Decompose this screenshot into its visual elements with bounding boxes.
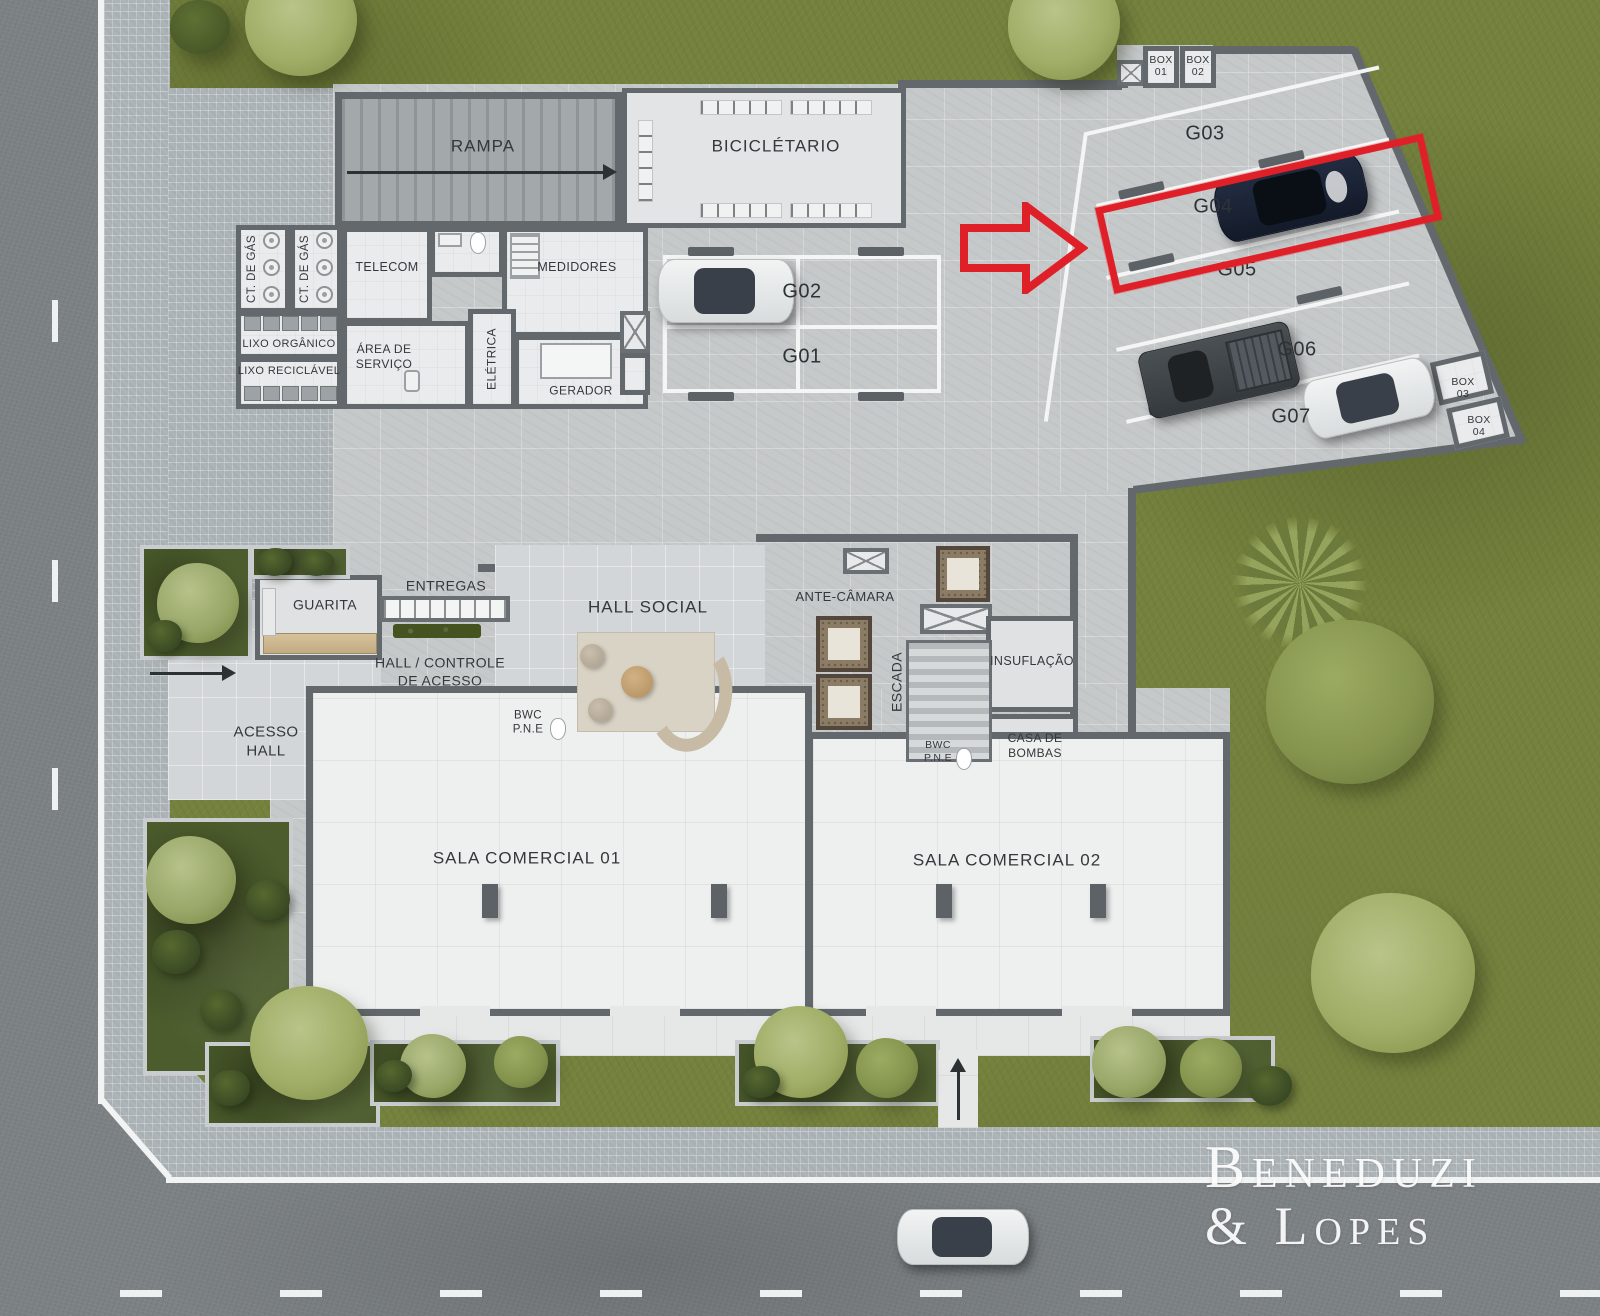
entrance-arrow-south-head bbox=[950, 1058, 966, 1072]
bike-rack bbox=[790, 100, 872, 115]
g01-label: G01 bbox=[782, 345, 821, 370]
bike-rack bbox=[638, 120, 653, 202]
entrance-arrow-south bbox=[957, 1068, 960, 1120]
wheel-stop bbox=[858, 392, 904, 401]
waste-bin bbox=[263, 316, 280, 331]
wheel-stop bbox=[858, 247, 904, 256]
lixo-organico-label: LIXO ORGÂNICO bbox=[242, 338, 335, 352]
armchair bbox=[588, 698, 612, 722]
guarita-desk bbox=[263, 633, 377, 654]
gas-cylinder bbox=[316, 232, 333, 249]
toilet bbox=[956, 748, 972, 770]
generator-unit bbox=[540, 343, 612, 379]
entrance-arrow-west bbox=[150, 672, 224, 675]
car-glass bbox=[694, 268, 756, 314]
rampa-area bbox=[335, 92, 622, 228]
elevator-cab bbox=[828, 628, 861, 661]
tree bbox=[146, 836, 236, 924]
lane-dash bbox=[600, 1290, 642, 1297]
elevator-cab bbox=[947, 558, 978, 591]
gas-cylinder bbox=[263, 286, 280, 303]
tree bbox=[250, 986, 368, 1100]
gas-cylinder bbox=[263, 259, 280, 276]
ante-camara-label: ANTE-CÂMARA bbox=[795, 589, 894, 605]
acesso-hall-label: ACESSO HALL bbox=[234, 723, 299, 761]
car-glass bbox=[932, 1217, 992, 1257]
wall-wing-top bbox=[1210, 46, 1355, 54]
rampa-label: RAMPA bbox=[451, 135, 515, 156]
elevator-cab bbox=[828, 686, 861, 719]
sala-comercial-2-room bbox=[806, 732, 1230, 1016]
bush bbox=[170, 0, 230, 54]
wheel-stop bbox=[688, 392, 734, 401]
storefront-opening bbox=[1062, 1006, 1132, 1016]
gas-cylinder bbox=[263, 232, 280, 249]
elevator bbox=[816, 616, 872, 672]
pillar bbox=[936, 884, 952, 918]
waste-bin bbox=[244, 386, 261, 401]
telecom-label: TELECOM bbox=[355, 260, 418, 276]
g03-label: G03 bbox=[1185, 122, 1224, 147]
bwc1-label: BWC P.N.E bbox=[513, 709, 544, 738]
waste-bin bbox=[282, 386, 299, 401]
box02-label: BOX02 bbox=[1186, 54, 1209, 78]
sala2-label: SALA COMERCIAL 02 bbox=[913, 849, 1101, 870]
curb-line-left bbox=[98, 0, 104, 1104]
lane-dash bbox=[440, 1290, 482, 1297]
shaft-cell bbox=[620, 353, 650, 395]
eletrica-label: ELÉTRICA bbox=[485, 328, 500, 390]
entregas-label: ENTREGAS bbox=[406, 577, 486, 595]
watermark-logo: Beneduzi & Lopes bbox=[1205, 1136, 1483, 1255]
medidores-label: MEDIDORES bbox=[537, 260, 616, 276]
g02-label: G02 bbox=[782, 280, 821, 305]
box04-label: BOX04 bbox=[1467, 414, 1490, 438]
entrance-arrow-west-head bbox=[222, 665, 236, 681]
car-street bbox=[897, 1209, 1029, 1265]
lixo-reciclavel-label: LIXO RECICLÁVEL bbox=[238, 365, 341, 379]
wall-mid-top bbox=[756, 534, 1078, 542]
lane-dash bbox=[280, 1290, 322, 1297]
entregas-lockers bbox=[380, 596, 510, 622]
tree bbox=[1092, 1026, 1166, 1098]
storefront-opening bbox=[420, 1006, 490, 1016]
lane-dash bbox=[920, 1290, 962, 1297]
lane-dash bbox=[52, 560, 58, 602]
tree bbox=[1180, 1038, 1242, 1098]
escada-label: ESCADA bbox=[888, 652, 906, 712]
insuflacao-label: INSUFLAÇÃO bbox=[990, 654, 1074, 670]
ct-gas-2-label: CT. DE GÁS bbox=[298, 235, 312, 303]
watermark-line2: & Lopes bbox=[1205, 1198, 1483, 1254]
tree bbox=[400, 1034, 466, 1098]
waste-bin bbox=[263, 386, 280, 401]
pillar bbox=[1090, 884, 1106, 918]
pillar bbox=[482, 884, 498, 918]
gas-cylinder bbox=[316, 286, 333, 303]
g07-label: G07 bbox=[1271, 405, 1310, 430]
watermark-line1: Beneduzi bbox=[1205, 1136, 1483, 1198]
gas-cylinder bbox=[316, 259, 333, 276]
g06-label: G06 bbox=[1277, 338, 1316, 363]
rampa-arrow bbox=[347, 171, 605, 174]
area-servico-label: ÁREA DE SERVIÇO bbox=[356, 342, 413, 372]
laundry-sink bbox=[404, 370, 420, 392]
elevator bbox=[936, 546, 990, 602]
parking-line bbox=[796, 255, 800, 393]
lane-dash bbox=[120, 1290, 162, 1297]
guarita-label: GUARITA bbox=[293, 596, 357, 614]
lane-dash bbox=[52, 768, 58, 810]
casa-bombas-label: CASA DE BOMBAS bbox=[1008, 731, 1063, 761]
meter-panel bbox=[510, 233, 540, 279]
sink bbox=[438, 233, 462, 247]
waste-bin bbox=[282, 316, 299, 331]
lane-dash bbox=[1400, 1290, 1442, 1297]
elevator bbox=[816, 674, 872, 730]
tree bbox=[494, 1036, 548, 1088]
waste-bin bbox=[301, 316, 318, 331]
shaft bbox=[620, 311, 650, 353]
armchair bbox=[580, 644, 604, 668]
lane-dash bbox=[1080, 1290, 1122, 1297]
waste-bin bbox=[320, 386, 337, 401]
floor-plan: RAMPA BICICLÉTARIO CT. DE GÁS CT. DE GÁS… bbox=[0, 0, 1600, 1316]
lane-dash bbox=[1240, 1290, 1282, 1297]
hall-social-label: HALL SOCIAL bbox=[588, 596, 708, 617]
sala1-label: SALA COMERCIAL 01 bbox=[433, 847, 621, 868]
shaft bbox=[843, 548, 889, 574]
tree bbox=[1311, 893, 1475, 1053]
waste-bin bbox=[320, 316, 337, 331]
waste-bin bbox=[244, 316, 261, 331]
bicicletario-label: BICICLÉTARIO bbox=[712, 135, 841, 156]
car-g02 bbox=[658, 259, 794, 323]
storefront-opening bbox=[610, 1006, 680, 1016]
highlight-arrow bbox=[958, 202, 1088, 294]
lane-dash bbox=[1560, 1290, 1600, 1297]
entregas-planter bbox=[393, 624, 481, 638]
toilet bbox=[470, 232, 486, 254]
shaft bbox=[1117, 60, 1145, 86]
guarita-counter bbox=[262, 588, 276, 636]
rampa-arrow-head bbox=[603, 164, 617, 180]
bike-rack bbox=[700, 100, 782, 115]
tree bbox=[1266, 620, 1434, 784]
waste-bin bbox=[301, 386, 318, 401]
bike-rack bbox=[790, 203, 872, 218]
bike-rack bbox=[700, 203, 782, 218]
bwc2-label: BWC P.N.E bbox=[924, 739, 952, 765]
lane-dash bbox=[760, 1290, 802, 1297]
box03-label: BOX03 bbox=[1451, 376, 1474, 400]
truck-glass bbox=[1166, 348, 1215, 404]
wheel-stop bbox=[688, 247, 734, 256]
shaft bbox=[920, 604, 992, 634]
lane-dash bbox=[52, 300, 58, 342]
pillar bbox=[711, 884, 727, 918]
wall-wing-top-left bbox=[1060, 82, 1122, 90]
tree bbox=[856, 1038, 918, 1098]
storefront-opening bbox=[866, 1006, 936, 1016]
hall-controle-label: HALL / CONTROLE DE ACESSO bbox=[375, 655, 505, 690]
box01-label: BOX01 bbox=[1149, 54, 1172, 78]
ct-gas-1-label: CT. DE GÁS bbox=[245, 235, 259, 303]
parking-line bbox=[663, 325, 941, 329]
toilet bbox=[550, 718, 566, 740]
car-glass bbox=[1334, 371, 1401, 426]
gerador-label: GERADOR bbox=[549, 384, 612, 399]
